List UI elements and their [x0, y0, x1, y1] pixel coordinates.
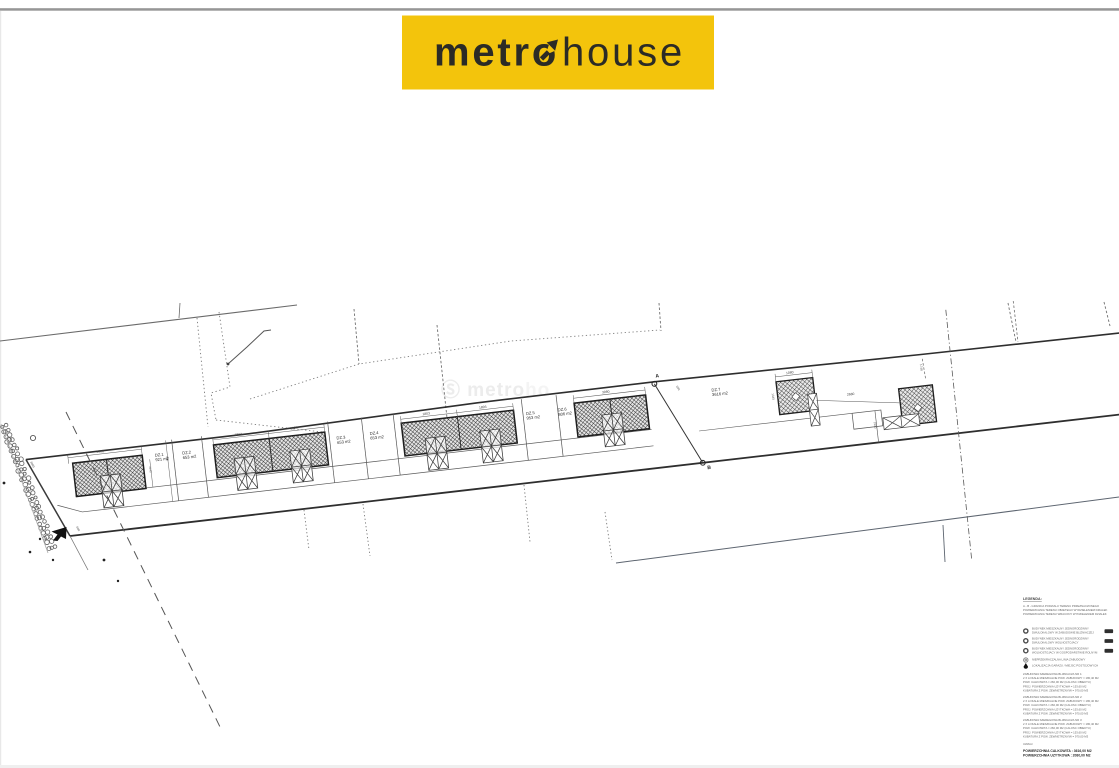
svg-text:921 m2: 921 m2 [155, 456, 170, 463]
svg-text:1803: 1803 [234, 432, 242, 437]
svg-text:KUBATURA Z POW. ZEWNETRZNYMI =: KUBATURA Z POW. ZEWNETRZNYMI = 970,00 M3 [1023, 688, 1089, 692]
svg-text:600: 600 [75, 526, 81, 533]
svg-text:NIEPRZEKRACZALNA LINIA ZABUDOW: NIEPRZEKRACZALNA LINIA ZABUDOWY [1032, 658, 1085, 662]
svg-text:1803: 1803 [422, 411, 430, 416]
svg-text:KUBATURA Z POW. ZEWNETRZNYMI =: KUBATURA Z POW. ZEWNETRZNYMI = 970,00 M3 [1023, 711, 1089, 715]
svg-text:1803: 1803 [290, 426, 298, 431]
svg-text:653 m2: 653 m2 [370, 434, 385, 441]
svg-text:2145: 2145 [148, 466, 153, 473]
svg-text:653 m2: 653 m2 [337, 438, 352, 445]
svg-text:620: 620 [675, 385, 681, 392]
svg-text:house: house [562, 31, 685, 75]
svg-text:806 m2: 806 m2 [558, 410, 573, 417]
svg-text:DWULOKALOWY W ZABUDOWIE BLIZNI: DWULOKALOWY W ZABUDOWIE BLIZNIACZEJ [1032, 631, 1094, 635]
svg-text:UWAGI:: UWAGI: [1023, 742, 1033, 746]
svg-text:DWULOKALOWY WOLNOSTOJACY: DWULOKALOWY WOLNOSTOJACY [1032, 641, 1079, 645]
svg-text:metro: metro [434, 31, 559, 75]
svg-text:1345: 1345 [771, 393, 776, 400]
svg-text:1500: 1500 [873, 422, 878, 429]
svg-text:1748: 1748 [919, 364, 924, 371]
svg-text:653 m2: 653 m2 [182, 453, 197, 460]
svg-text:Ⓢ metroho: Ⓢ metroho [441, 378, 550, 401]
svg-text:POWIERZCHNIA TERENU WRACONY WY: POWIERZCHNIA TERENU WRACONY WYDZIELENIEM… [1023, 612, 1107, 616]
svg-text:2680: 2680 [847, 392, 855, 397]
svg-text:KUBATURA Z POW. ZEWNETRZNYMI =: KUBATURA Z POW. ZEWNETRZNYMI = 970,00 M3 [1023, 734, 1089, 738]
svg-text:LOKALIZACJA GARAZU / MIEJSC PO: LOKALIZACJA GARAZU / MIEJSC POSTOJOWYCH [1032, 664, 1098, 668]
svg-text:LEGENDA:: LEGENDA: [1023, 597, 1042, 601]
svg-text:953 m2: 953 m2 [526, 414, 541, 421]
svg-text:1080: 1080 [786, 370, 794, 375]
svg-text:3080: 3080 [602, 390, 610, 395]
svg-text:POWIERZCHNIA CALKOWITA : 3616,: POWIERZCHNIA CALKOWITA : 3616,00 M2 [1023, 749, 1092, 753]
svg-text:B: B [707, 465, 712, 471]
svg-text:2080: 2080 [96, 449, 104, 454]
svg-text:POWIERZCHNIA UZYTKOWA : 2080,0: POWIERZCHNIA UZYTKOWA : 2080,00 M2 [1023, 754, 1091, 758]
svg-text:1803: 1803 [479, 405, 487, 410]
svg-text:A: A [655, 373, 660, 379]
svg-text:WOLNOSTOJACY W GOSPODARSTWIE R: WOLNOSTOJACY W GOSPODARSTWIE ROLNYM [1032, 651, 1098, 655]
svg-text:3616 m2: 3616 m2 [712, 390, 729, 397]
